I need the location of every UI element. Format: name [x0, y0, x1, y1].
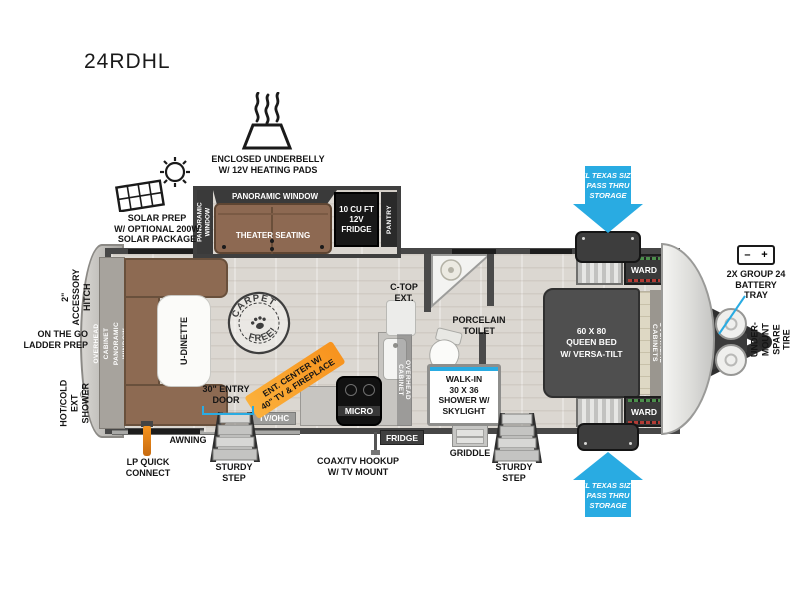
cup-holder — [222, 245, 226, 249]
bracket-tick — [202, 406, 204, 413]
spare-tire-label: UNDER-MOUNT SPARE TIRE — [748, 296, 794, 384]
pantry: PANTRY — [381, 192, 397, 247]
front-cap — [661, 243, 715, 435]
u-dinette-top-arm — [124, 258, 228, 298]
queen-bed: 60 X 80 QUEEN BED W/ VERSA-TILT — [543, 288, 640, 398]
window — [128, 249, 200, 254]
window — [128, 429, 200, 434]
pass-thru-door-top — [575, 231, 641, 263]
cup-holder — [320, 245, 324, 249]
corner-vanity — [431, 254, 491, 308]
griddle-plate — [456, 437, 484, 444]
kitchen-overhead-cabinet: OVERHEAD CABINET — [397, 334, 412, 426]
lp-quick-connect-label: LP QUICK CONNECT — [116, 457, 180, 478]
pass-thru-callout-top: XL TEXAS SIZE PASS THRU STORAGE — [573, 166, 643, 234]
window — [530, 249, 572, 254]
heating-pads-icon — [237, 92, 297, 152]
underbelly-label: ENCLOSED UNDERBELLY W/ 12V HEATING PADS — [182, 154, 354, 175]
cup-holder — [270, 247, 274, 251]
pass-thru-door-bottom — [577, 423, 639, 451]
bath-wall — [424, 254, 431, 312]
sturdy-step-left-label: STURDY STEP — [202, 462, 266, 483]
burner — [345, 384, 357, 396]
hanger-stripe — [628, 279, 660, 282]
c-top-ext-label: C-TOP EXT. — [384, 282, 424, 303]
window — [452, 249, 496, 254]
screw — [631, 237, 634, 240]
shower-skylight-strip — [430, 367, 498, 371]
griddle-label: GRIDDLE — [436, 448, 504, 459]
bath-wall — [487, 254, 494, 306]
hanger-stripe — [628, 399, 660, 402]
battery-icon: – + — [737, 245, 775, 265]
screw — [582, 237, 585, 240]
theater-seating: THEATER SEATING — [214, 203, 332, 254]
coax-hookup-label: COAX/TV HOOKUP W/ TV MOUNT — [302, 456, 414, 477]
burner — [363, 384, 375, 396]
micro-range: MICRO — [336, 376, 382, 426]
solar-prep-label: SOLAR PREP W/ OPTIONAL 200W SOLAR PACKAG… — [95, 213, 219, 245]
ext-shower-label: HOT/COLD EXT SHOWER — [52, 370, 96, 436]
micro-label: MICRO — [338, 406, 380, 416]
coax-cable-icon — [371, 450, 380, 455]
floorplan-diagram: 24RDHL ENCLOSED UNDERBELLY W/ 12V HEATIN… — [0, 0, 800, 600]
fridge-12v: 10 CU FT 12V FRIDGE — [334, 192, 379, 247]
porcelain-toilet-label: PORCELAIN TOILET — [446, 315, 512, 336]
page-title: 24RDHL — [84, 50, 171, 74]
pass-thru-top-label: XL TEXAS SIZE PASS THRU STORAGE — [573, 171, 643, 200]
battery-leader-line — [714, 294, 748, 336]
griddle-plate — [456, 429, 484, 437]
slide-out: PANORAMIC WINDOW PANORAMIC WINDOW THEATE… — [193, 186, 401, 258]
sturdy-step-right-label: STURDY STEP — [482, 462, 546, 483]
ladder-prep-label: ON THE GO LADDER PREP — [10, 329, 88, 350]
theater-seating-label: THEATER SEATING — [216, 231, 330, 240]
awning-label: AWNING — [160, 435, 216, 446]
pass-thru-callout-bottom: XL TEXAS SIZE PASS THRU STORAGE — [573, 452, 643, 518]
screw — [584, 442, 587, 445]
fridge-tag: FRIDGE — [380, 430, 424, 445]
walk-in-shower-label: WALK-IN 30 X 36 SHOWER W/ SKYLIGHT — [430, 374, 498, 417]
u-dinette-table: U-DINETTE — [157, 295, 211, 387]
griddle-icon — [452, 425, 488, 447]
lp-connector-icon — [143, 426, 151, 456]
countertop-extension — [386, 300, 416, 336]
sofa-back-line — [218, 213, 328, 215]
entry-door-bracket — [202, 406, 254, 415]
screw — [629, 442, 632, 445]
entry-door-label: 30" ENTRY DOOR — [194, 384, 258, 405]
accessory-hitch-label: 2" ACCESSORY HITCH — [54, 254, 98, 340]
coax-cable-icon — [374, 432, 377, 452]
pass-thru-bottom-label: XL TEXAS SIZE PASS THRU STORAGE — [573, 481, 643, 510]
panoramic-window-top: PANORAMIC WINDOW — [213, 190, 337, 204]
rear-overhead-cabinet: OVERHEAD CABINET PANORAMIC WINDOW — [99, 257, 125, 429]
bracket-tick — [252, 406, 254, 413]
